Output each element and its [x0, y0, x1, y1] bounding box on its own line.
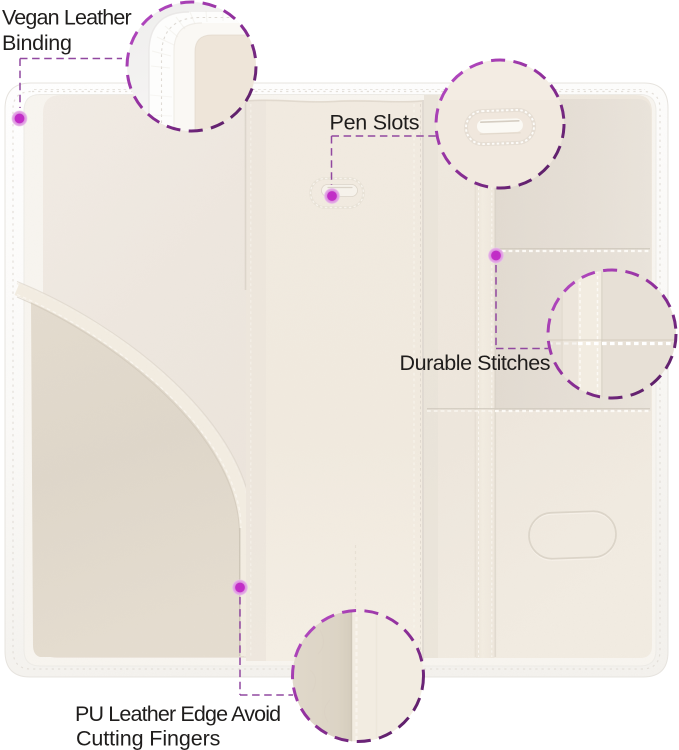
svg-text:Cutting Fingers: Cutting Fingers	[76, 727, 220, 750]
svg-text:Pen Slots: Pen Slots	[330, 111, 420, 135]
svg-text:Vegan Leather: Vegan Leather	[2, 6, 132, 30]
svg-text:PU Leather Edge Avoid: PU Leather Edge Avoid	[75, 702, 280, 726]
svg-text:Durable Stitches: Durable Stitches	[400, 351, 551, 375]
svg-text:Binding: Binding	[2, 31, 72, 55]
